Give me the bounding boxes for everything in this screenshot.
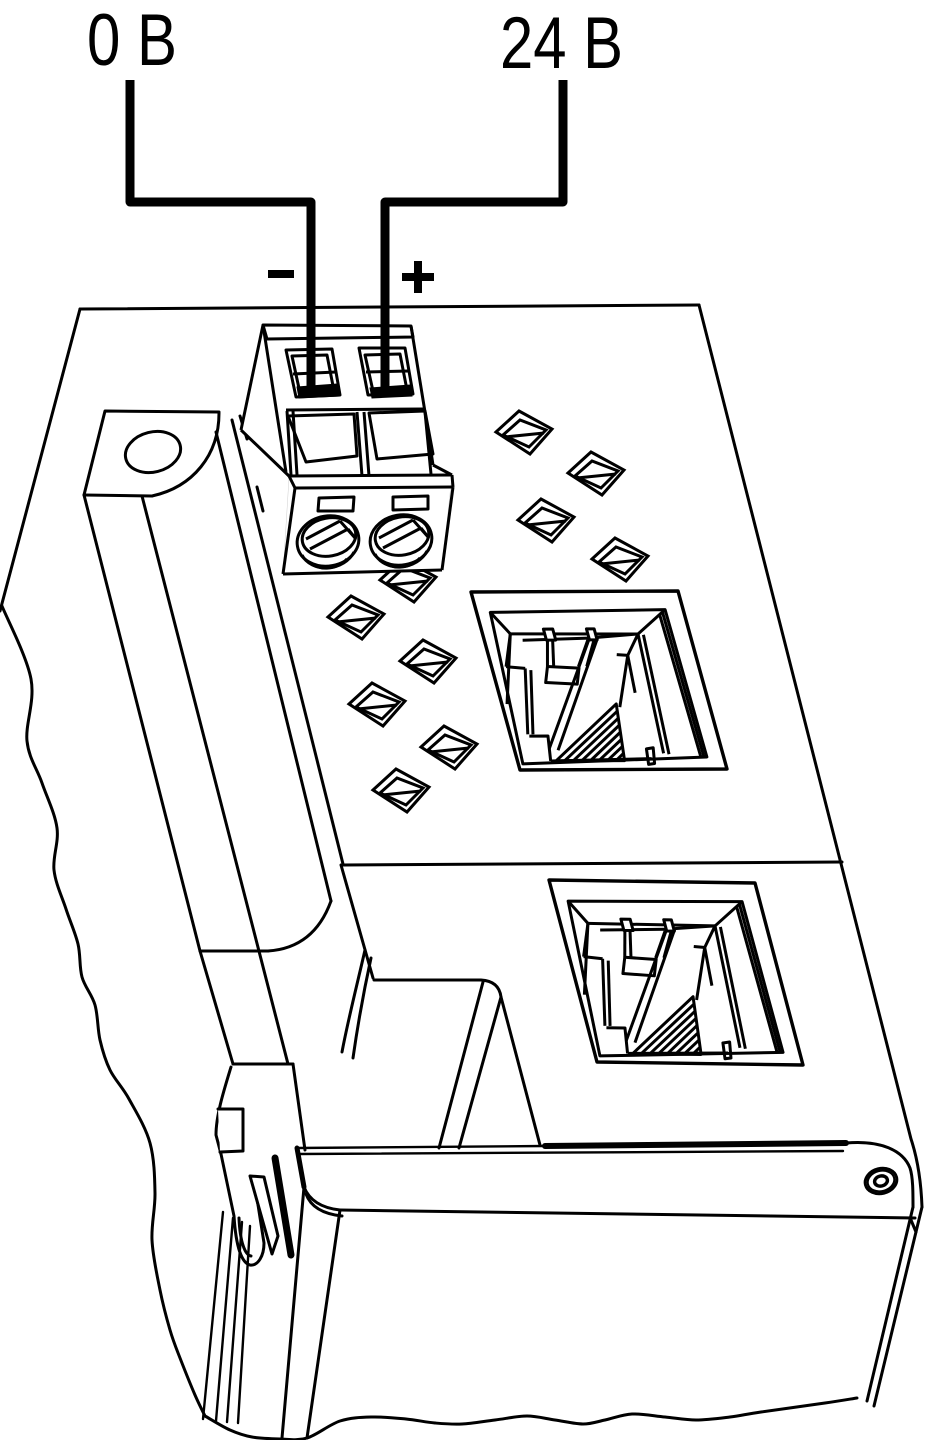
svg-text:0 В: 0 В: [87, 0, 177, 81]
svg-text:24 В: 24 В: [500, 3, 623, 84]
